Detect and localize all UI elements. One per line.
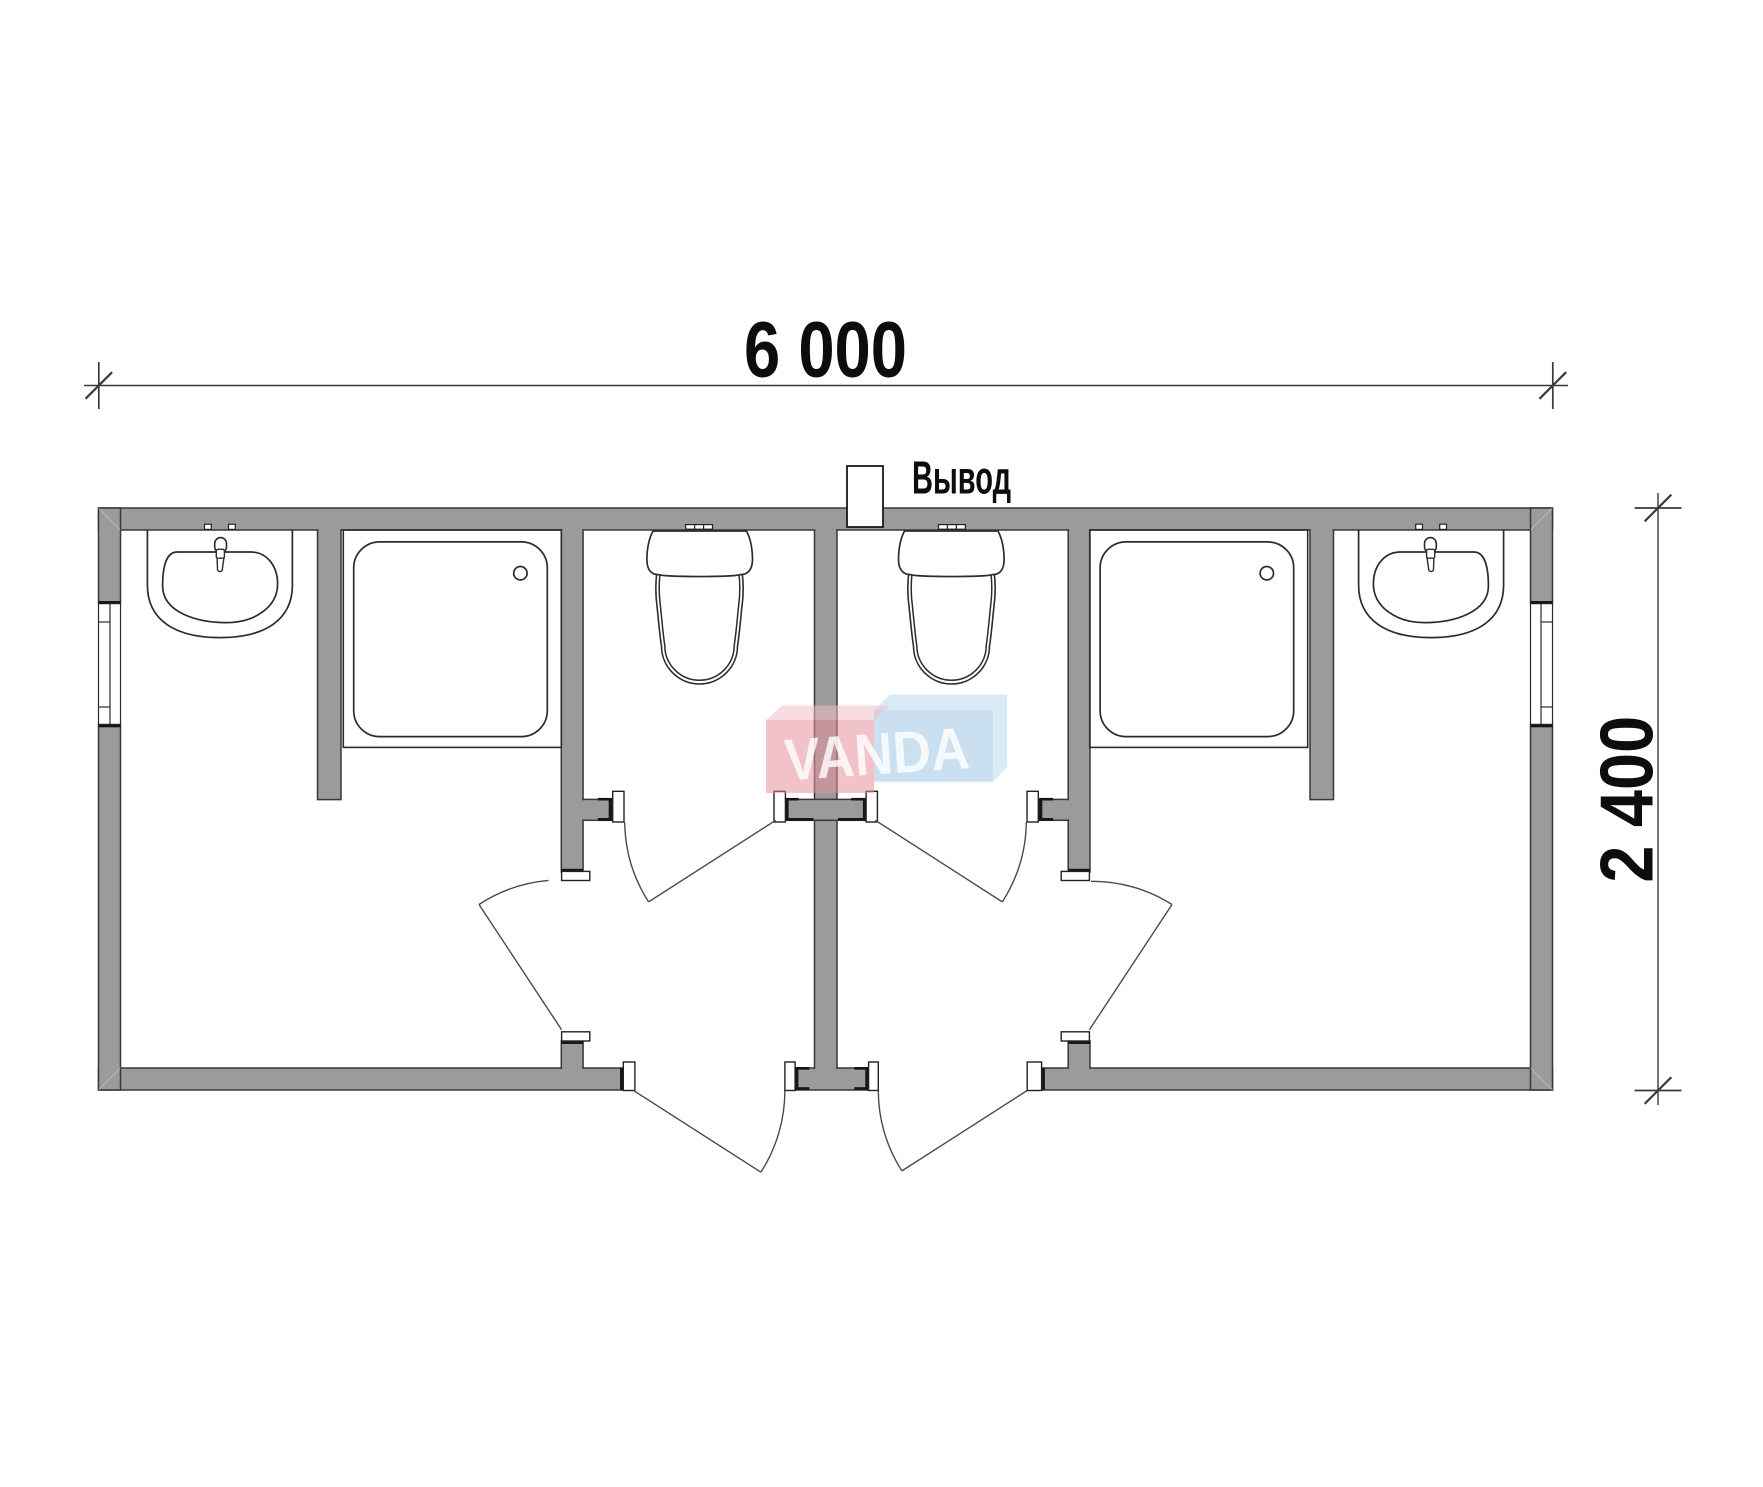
- svg-text:6 000: 6 000: [744, 305, 907, 394]
- svg-text:2 400: 2 400: [1585, 716, 1669, 883]
- svg-text:Вывод: Вывод: [912, 452, 1011, 504]
- svg-text:VANDA: VANDA: [782, 715, 971, 793]
